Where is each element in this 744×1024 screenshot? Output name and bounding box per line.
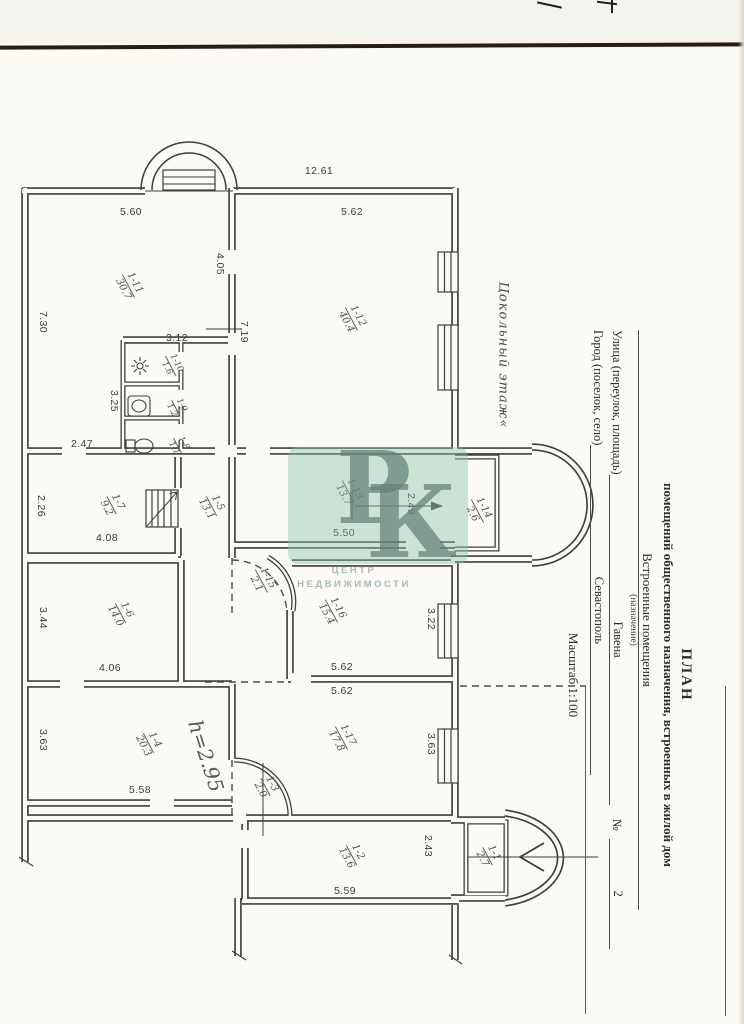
dim-r11-left: 7.30 <box>37 311 49 333</box>
dim-r12-top: 5.62 <box>341 206 363 218</box>
dim-r6-bottom: 4.06 <box>99 662 121 674</box>
dim-door-top: 4.05 <box>214 253 226 275</box>
city-value: Севастополь <box>590 445 606 775</box>
house-number-label: № <box>609 819 624 831</box>
scale-note: Масштаб 1:100 <box>565 330 581 1020</box>
porch-arc <box>141 142 237 191</box>
title-block-border-top <box>725 686 726 1016</box>
street-label: Улица (переулок, площадь) <box>609 330 624 475</box>
dim-r16-bottom: 5.62 <box>331 661 353 673</box>
shower-icon <box>131 357 149 375</box>
dim-r2-right: 2.43 <box>422 835 434 857</box>
street-row: Улица (переулок, площадь) Гавена № 2 <box>609 330 625 1020</box>
watermark-letter-k: К <box>366 472 457 572</box>
watermark-caption-line1: ЦЕНТР <box>279 564 429 578</box>
title-block-content: ПЛАН помещений общественного назначения,… <box>565 330 694 1020</box>
street-value: Гавена <box>609 475 625 805</box>
house-number-value: 2 <box>609 839 625 949</box>
dim-r17-top: 5.62 <box>331 685 353 697</box>
title-block-rotated: ПЛАН помещений общественного назначения,… <box>560 330 730 1020</box>
plan-subtitle: помещений общественного назначения, встр… <box>660 330 676 1020</box>
sink-icon <box>128 396 150 416</box>
dim-r16-right: 3.22 <box>425 608 437 630</box>
dim-overall-top: 12.61 <box>305 165 333 177</box>
city-label: Город (поселок, село) <box>590 330 605 445</box>
dim-r12-left: 7.19 <box>238 321 250 343</box>
dim-bath-top: 3.12 <box>166 332 188 344</box>
dim-r17-right: 3.63 <box>425 733 437 755</box>
dim-bath-left: 3.25 <box>108 390 120 412</box>
dim-r7-bottom: 4.08 <box>96 532 118 544</box>
floor-name-note: Цокольный этаж« <box>496 282 511 429</box>
designation-value: Встроенные помещения <box>638 330 655 910</box>
plan-title: ПЛАН <box>677 330 694 1020</box>
dim-r7-left: 2.26 <box>35 495 47 517</box>
title-block: ПЛАН помещений общественного назначения,… <box>560 330 730 1020</box>
stairs-icon <box>146 490 178 527</box>
watermark-caption: ЦЕНТР НЕДВИЖИМОСТИ <box>279 564 429 592</box>
watermark-caption-line2: НЕДВИЖИМОСТИ <box>279 578 429 592</box>
dim-r2-bottom: 5.59 <box>334 885 356 897</box>
city-row: Город (поселок, село) Севастополь <box>590 330 606 1020</box>
dim-r11-bottom: 2.47 <box>71 438 93 450</box>
dim-r4-bottom: 5.58 <box>129 784 151 796</box>
watermark-logo: Р К <box>330 430 540 580</box>
dim-r11-top: 5.60 <box>120 206 142 218</box>
scanned-floor-plan-page: 12.61 5.60 5.62 4.05 7.30 7.19 3.12 3.25… <box>0 0 744 1024</box>
dim-r6-left: 3.44 <box>37 607 49 629</box>
designation-caption: (назначение) <box>628 330 638 910</box>
dim-r4-left: 3.63 <box>37 729 49 751</box>
